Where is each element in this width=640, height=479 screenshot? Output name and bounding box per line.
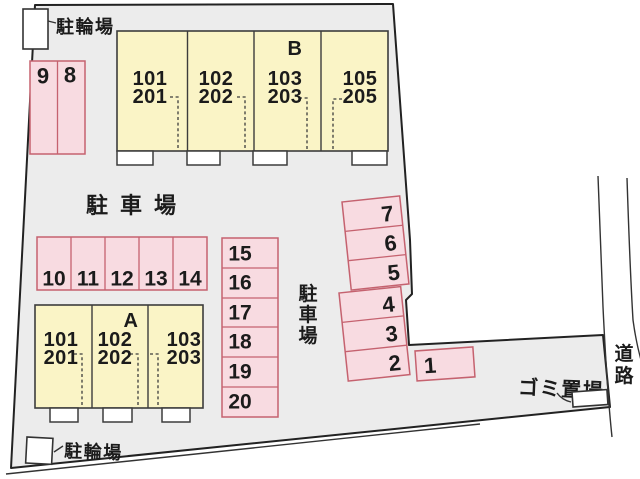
parking-space-number: 13	[144, 268, 167, 291]
parking-right-lower-4-2: 4 3 2	[339, 287, 410, 381]
parking-space-number: 12	[110, 268, 133, 291]
parking-space-number: 19	[228, 361, 251, 384]
parking-row-10-14: 10 11 12 13 14	[37, 237, 207, 291]
building-a-porch	[103, 408, 132, 422]
parking-space-number: 7	[380, 201, 395, 227]
site-plan: 道路 駐輪場 9 8 B 101 201 102 202 103 203 105…	[0, 0, 640, 479]
bicycle-shed-bottom-box	[26, 437, 53, 464]
building-b: B 101 201 102 202 103 203 105 205	[117, 31, 388, 165]
parking-space-number: 8	[64, 63, 76, 88]
unit-number: 201	[133, 86, 168, 108]
parking-space-1: 1	[415, 347, 475, 381]
unit-number: 203	[268, 86, 303, 108]
building-b-porch	[117, 151, 153, 165]
parking-space-number: 5	[386, 259, 401, 285]
parking-space-number: 1	[423, 353, 437, 379]
parking-pair-9-8: 9 8	[30, 61, 85, 154]
parking-space-number: 15	[228, 243, 252, 266]
unit-number: 202	[199, 86, 234, 108]
bicycle-shed-bottom-label: 駐輪場	[64, 440, 123, 463]
unit-number: 205	[343, 86, 378, 108]
unit-number: 202	[98, 347, 133, 369]
parking-space-number: 3	[384, 321, 399, 347]
unit-number: 203	[167, 347, 202, 369]
building-b-porch	[352, 151, 387, 165]
parking-space-number: 18	[228, 331, 252, 354]
parking-space-number: 10	[42, 268, 65, 291]
parking-space-number: 6	[383, 230, 398, 256]
road-right-line	[627, 178, 640, 360]
building-b-porch	[253, 151, 287, 165]
parking-space-number: 17	[228, 302, 251, 325]
building-b-porch	[187, 151, 220, 165]
parking-lot-vertical-label: 駐車場	[298, 282, 317, 347]
unit-number: 201	[44, 347, 79, 369]
garbage-box	[572, 390, 608, 407]
parking-space-number: 9	[37, 64, 49, 89]
building-a-porch	[50, 408, 78, 422]
building-b-label: B	[288, 38, 303, 60]
building-a-porch	[162, 408, 190, 422]
parking-lot-label: 駐車場	[86, 193, 188, 218]
building-a: A 101 201 102 202 103 203	[35, 305, 203, 422]
parking-right-upper-7-5: 7 6 5	[342, 196, 409, 290]
parking-space-number: 16	[228, 272, 251, 295]
parking-space-number: 11	[77, 268, 100, 291]
road-label: 道路	[614, 342, 634, 387]
bicycle-shed-top-label: 駐輪場	[56, 16, 115, 37]
parking-column-15-20: 15 16 17 18 19 20	[222, 238, 278, 417]
bicycle-shed-top-box	[23, 9, 48, 49]
parking-space-number: 2	[387, 350, 402, 376]
parking-space-number: 14	[178, 268, 202, 291]
parking-space-number: 20	[228, 391, 251, 414]
